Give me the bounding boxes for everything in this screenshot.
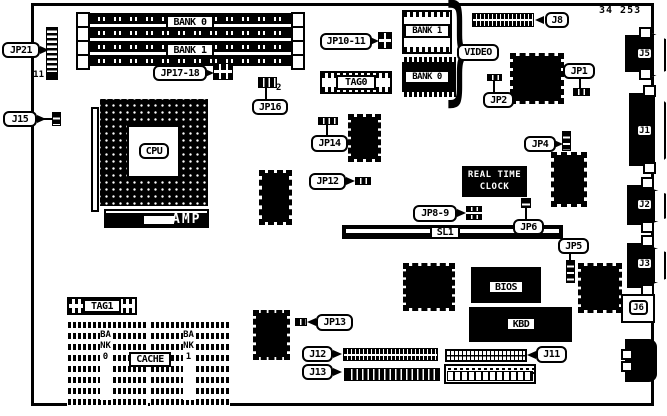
connector-label-j15: J15 — [3, 111, 37, 127]
jp16-pin-number: 2 — [276, 83, 281, 93]
pointer-arrow — [40, 46, 49, 54]
jp8-jumper — [466, 206, 482, 212]
jumper-label-jp4: JP4 — [524, 136, 556, 152]
jumper-label-jp1: JP1 — [563, 63, 595, 79]
jp17-18-jumper — [213, 63, 233, 80]
jumper-label-jp16: JP16 — [252, 99, 288, 115]
jp12-jumper — [355, 177, 371, 185]
jumper-label-jp2: JP2 — [483, 92, 514, 108]
jumper-label-jp14: JP14 — [311, 135, 348, 152]
external-connector — [625, 339, 657, 382]
j11-connector — [445, 349, 527, 362]
sl1-label: SL1 — [430, 226, 460, 239]
motherboard-diagram: 34 253 BANK 0 BANK 1 JP21 11 J15 CPU AMP… — [0, 0, 667, 416]
part-number: 34 253 — [599, 5, 641, 16]
cache-bank0-label: BANK0 — [100, 330, 111, 400]
pointer-line — [569, 253, 571, 261]
connector-label-j3: J3 — [636, 257, 653, 270]
j1-shell — [653, 92, 666, 169]
connector-label-j12: J12 — [302, 346, 333, 362]
pointer-arrow — [346, 177, 355, 185]
cache-label: CACHE — [129, 352, 171, 367]
j3-shell — [653, 247, 666, 284]
tag0-label: TAG0 — [336, 75, 376, 90]
power-connector — [444, 364, 536, 384]
jp4-jumper — [562, 131, 571, 151]
real-time-clock-chip: REAL TIME CLOCK — [462, 166, 527, 197]
qfp-chip — [253, 310, 290, 360]
socket-lever-slot — [144, 216, 174, 224]
jp9-jumper — [466, 214, 482, 220]
video-bank1-label: BANK 1 — [404, 24, 450, 38]
jp5-jumper — [566, 260, 575, 283]
rtc-text-line1: REAL TIME — [468, 170, 521, 182]
jp16-jumper — [258, 77, 277, 88]
jumper-label-jp21: JP21 — [2, 42, 40, 58]
connector-label-j1: J1 — [636, 124, 653, 137]
jp1-jumper — [573, 88, 590, 96]
pointer-arrow — [333, 350, 342, 358]
connector-label-j13: J13 — [302, 364, 333, 380]
bios-label: BIOS — [488, 280, 524, 294]
memory-bank1-label: BANK 1 — [166, 43, 214, 57]
pointer-line — [579, 79, 581, 89]
j15-jumper — [52, 112, 61, 126]
cpu-label: CPU — [139, 143, 169, 159]
qfp-chip — [403, 263, 455, 311]
jp21-pin11-mark — [46, 73, 58, 80]
tag1-label: TAG1 — [83, 299, 121, 313]
pointer-arrow — [333, 368, 342, 376]
video-label: VIDEO — [457, 44, 499, 61]
qfp-chip — [578, 263, 622, 313]
jp6-jumper — [521, 198, 531, 208]
jp13-jumper — [295, 318, 307, 326]
jumper-label-jp5: JP5 — [558, 238, 589, 254]
jumper-label-jp13: JP13 — [316, 314, 353, 331]
jumper-label-jp17-18: JP17-18 — [153, 65, 207, 81]
j13-connector — [344, 368, 440, 381]
jp14-jumper — [318, 117, 338, 125]
connector-label-j6: J6 — [629, 300, 648, 315]
qfp-chip — [348, 114, 381, 162]
connector-label-j11: J11 — [536, 346, 567, 363]
pointer-arrow — [535, 16, 544, 24]
jumper-label-jp6: JP6 — [513, 219, 544, 235]
pointer-arrow — [527, 351, 536, 359]
jumper-label-jp12: JP12 — [309, 173, 346, 190]
j12-connector — [343, 348, 438, 361]
j5-shell — [652, 33, 666, 77]
jumper-label-jp8-9: JP8-9 — [413, 205, 457, 222]
j2-shell — [653, 189, 666, 223]
pointer-arrow — [307, 318, 316, 326]
qfp-chip — [551, 152, 587, 207]
video-bank0-label: BANK 0 — [404, 70, 450, 84]
connector-label-j8: J8 — [545, 12, 569, 28]
pointer-arrow — [37, 115, 46, 123]
connector-label-j5: J5 — [636, 47, 653, 60]
kbd-label: KBD — [506, 317, 536, 331]
jp2-jumper — [487, 74, 502, 81]
socket-brand-text: AMP — [172, 212, 201, 227]
qfp-chip — [259, 170, 292, 225]
memory-bank0-label: BANK 0 — [166, 15, 214, 29]
cpu-socket-lever — [91, 107, 99, 212]
pointer-arrow — [457, 209, 466, 217]
cache-bank1-label: BANK1 — [183, 330, 194, 400]
jumper-label-jp10-11: JP10-11 — [320, 33, 372, 50]
jp10-11-jumper — [378, 32, 392, 49]
jp21-pin-number: 11 — [28, 70, 44, 80]
connector-label-j2: J2 — [636, 198, 653, 211]
video-controller-chip — [510, 53, 564, 104]
rtc-text-line2: CLOCK — [480, 182, 510, 194]
j8-connector — [472, 13, 534, 27]
